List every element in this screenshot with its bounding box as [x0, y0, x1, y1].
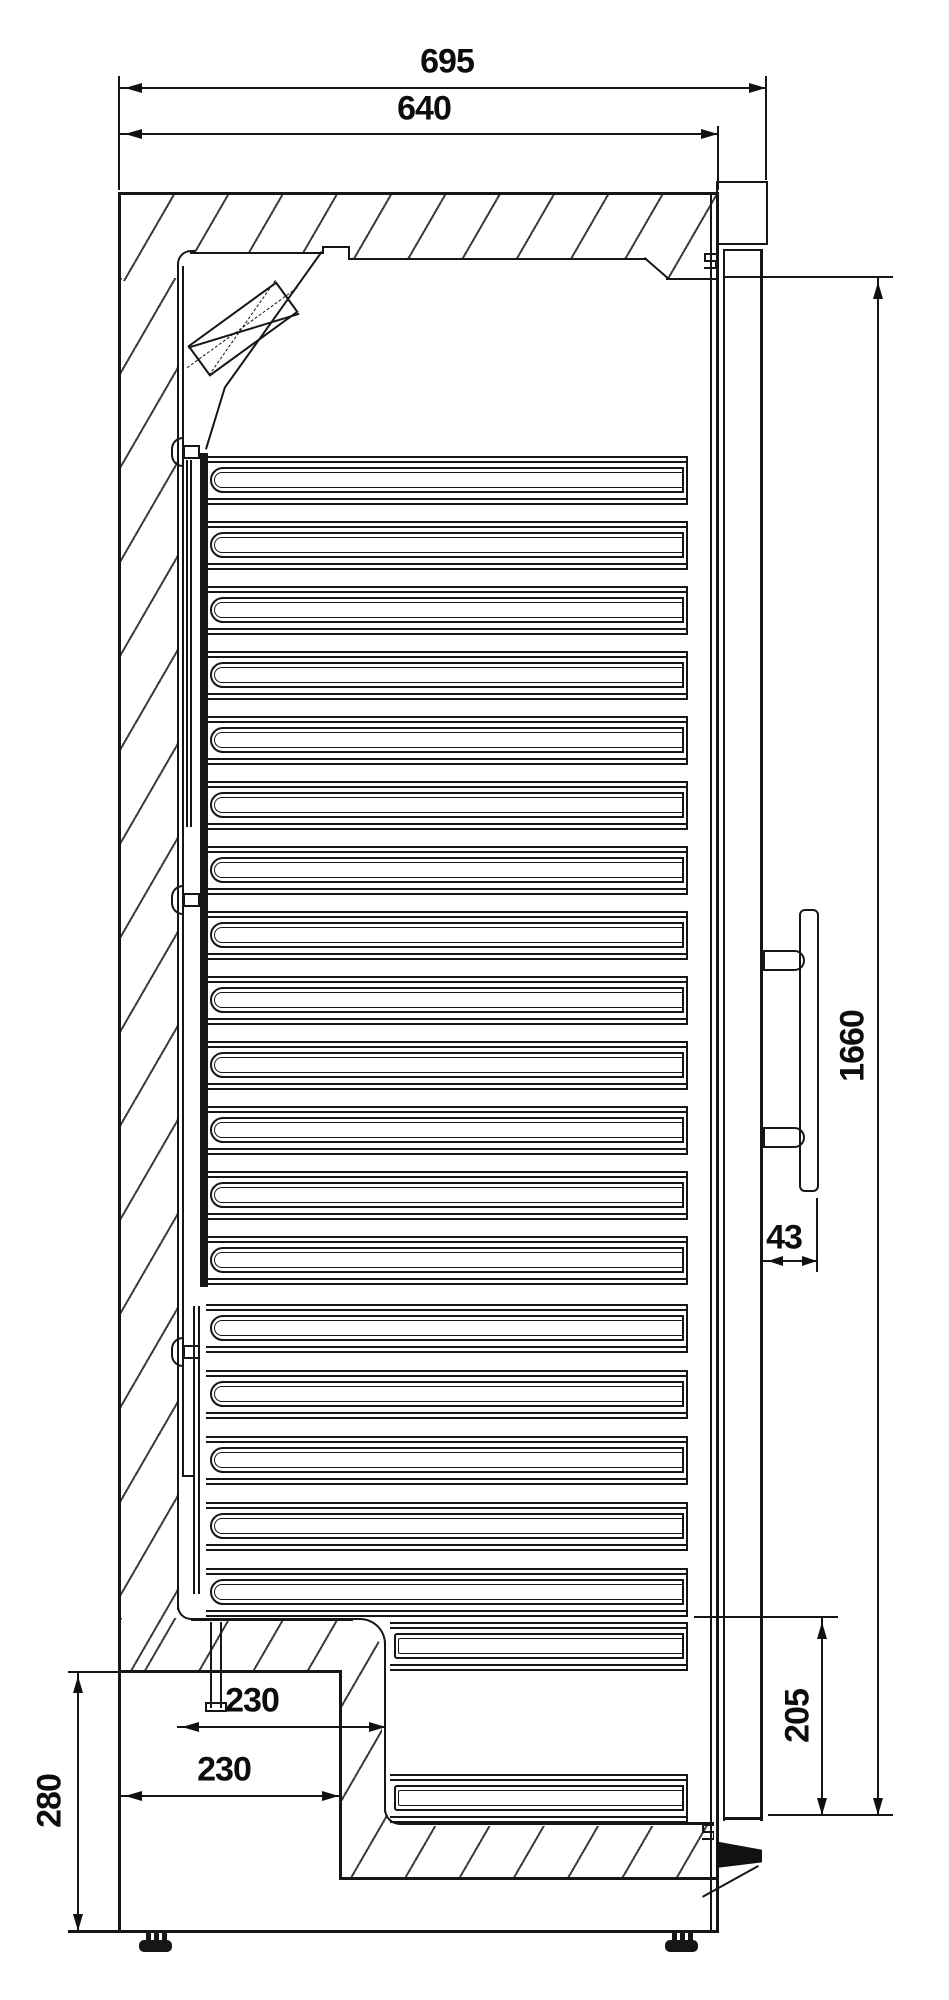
- door-outer-face: [760, 249, 763, 1821]
- shelf-line: [206, 1088, 688, 1090]
- shelf-line: [206, 461, 688, 463]
- shelf-line: [206, 1436, 688, 1438]
- shelf-line: [206, 1278, 688, 1280]
- shelf-line: [390, 1779, 688, 1781]
- shelf-line: [206, 1018, 688, 1020]
- shelf-line: [206, 1046, 688, 1048]
- shelf-tube-inner: [214, 472, 684, 488]
- shelf-tube-capsule: [210, 662, 684, 688]
- arrow-right-icon: [322, 1791, 344, 1801]
- shelf-tube-capsule: [210, 1381, 684, 1407]
- shelf-line: [390, 1622, 688, 1624]
- door-top-edge: [723, 249, 763, 251]
- shelf-end-cap: [686, 1568, 688, 1617]
- interior-floor-line: [191, 1618, 353, 1621]
- shelf-line: [206, 976, 688, 978]
- cabinet-front-frame-inner: [710, 192, 712, 1933]
- shelf-line: [206, 1549, 688, 1551]
- arrow-left-icon: [120, 83, 142, 93]
- step-corner-top: [351, 1618, 386, 1644]
- shelf-tube-capsule: [394, 1633, 684, 1659]
- top-hinge-bracket: [716, 181, 768, 245]
- shelf-line: [206, 628, 688, 630]
- shelf-line: [206, 1370, 688, 1372]
- shelf-line: [206, 568, 688, 570]
- shelf-tube-inner: [214, 927, 684, 943]
- shelf-tube-inner: [214, 537, 684, 553]
- technical-drawing-canvas: 695 640 1660 205 43 280 230 230: [0, 0, 949, 2000]
- left-wall-hatch: [120, 278, 177, 1672]
- shelf-line: [206, 781, 688, 783]
- shelf-line: [206, 1309, 688, 1311]
- shelf-line: [390, 1816, 688, 1818]
- evaporator-shelf: [206, 1236, 688, 1285]
- evaporator-shelf: [206, 456, 688, 505]
- cabinet-top-edge: [120, 192, 718, 195]
- evaporator-shelf: [206, 586, 688, 635]
- shelf-end-cap: [686, 911, 688, 960]
- shelf-line: [206, 953, 688, 955]
- evap-rear-panel-a: [186, 460, 188, 827]
- shelf-line: [206, 1610, 688, 1612]
- shelf-tube-capsule: [210, 727, 684, 753]
- shelf-line: [206, 763, 688, 765]
- evaporator-shelf: [206, 716, 688, 765]
- shelf-line: [206, 846, 688, 848]
- shelf-line: [206, 1083, 688, 1085]
- shelf-line: [206, 1148, 688, 1150]
- arrow-down-icon: [73, 1914, 83, 1936]
- dim-line-230-outer: [120, 1795, 339, 1797]
- shelf-line: [206, 1441, 688, 1443]
- ceiling-liner-left: [190, 252, 322, 254]
- dim-line-205: [821, 1617, 823, 1815]
- evaporator-shelf: [206, 1370, 688, 1419]
- arrow-down-icon: [873, 1798, 883, 1820]
- ceiling-liner-mid: [348, 258, 647, 260]
- shelf-tube-capsule: [210, 1247, 684, 1273]
- shelf-tube-capsule: [210, 1315, 684, 1341]
- evaporator-shelf: [206, 1041, 688, 1090]
- shelf-tube-inner: [214, 602, 684, 618]
- shelf-line: [206, 851, 688, 853]
- shelf-end-cap: [686, 456, 688, 505]
- dim-line-640: [120, 133, 718, 135]
- ceiling-notch-top: [322, 246, 350, 248]
- shelf-line: [206, 721, 688, 723]
- shelf-line: [206, 1111, 688, 1113]
- compartment-ceiling-line: [120, 1670, 341, 1673]
- shelf-line: [206, 916, 688, 918]
- shelf-tube-capsule: [210, 792, 684, 818]
- bottom-hinge-block: [716, 1840, 762, 1868]
- dim-line-1660: [877, 277, 879, 1815]
- shelf-end-cap: [686, 976, 688, 1025]
- shelf-line: [206, 521, 688, 523]
- shelf-line: [206, 591, 688, 593]
- shelf-end-cap: [686, 651, 688, 700]
- evaporator-shelf: [206, 1568, 688, 1617]
- shelf-tube-capsule: [210, 597, 684, 623]
- shelf-line: [206, 981, 688, 983]
- shelf-line: [206, 1023, 688, 1025]
- shelf-line: [206, 1236, 688, 1238]
- cabinet-front-frame-outer: [716, 192, 719, 1933]
- shelf-line: [206, 1568, 688, 1570]
- shelf-line: [206, 1213, 688, 1215]
- shelf-line: [206, 828, 688, 830]
- shelf-line: [390, 1821, 688, 1823]
- shelf-end-cap: [686, 1502, 688, 1551]
- shelf-line: [390, 1627, 688, 1629]
- gasket-bottom-icon: [713, 1831, 715, 1839]
- shelf-tube-inner: [214, 1386, 684, 1402]
- shelf-line: [206, 1615, 688, 1617]
- shelf-tube-inner: [214, 1122, 684, 1138]
- shelf-line: [206, 586, 688, 588]
- dim-depth-inner-label: 230: [225, 1682, 279, 1721]
- shelf-line: [206, 1153, 688, 1155]
- shelf-end-cap: [686, 716, 688, 765]
- evaporator-shelf: [206, 1502, 688, 1551]
- shelf-tube-inner: [214, 667, 684, 683]
- shelf-tube-capsule: [210, 1117, 684, 1143]
- evaporator-shelf: [206, 976, 688, 1025]
- dim-handle-standoff-label: 43: [766, 1219, 802, 1258]
- shelf-end-cap: [686, 586, 688, 635]
- shelf-line: [390, 1774, 688, 1776]
- mount-bolt-dome: [171, 885, 183, 915]
- shelf-end-cap: [686, 1236, 688, 1285]
- door-inner-face: [723, 249, 725, 1821]
- shelf-tube-capsule: [394, 1785, 684, 1811]
- shelf-line: [206, 1412, 688, 1414]
- arrow-left-icon: [177, 1722, 199, 1732]
- shelf-end-cap: [686, 781, 688, 830]
- evaporator-shelf: [206, 651, 688, 700]
- shelf-line: [206, 1304, 688, 1306]
- ext-line: [723, 276, 893, 278]
- shelf-tube-inner: [214, 992, 684, 1008]
- shelf-line: [206, 1176, 688, 1178]
- shelf-end-cap: [686, 1041, 688, 1090]
- shelf-end-cap: [686, 1304, 688, 1353]
- shelf-tube-capsule: [210, 1182, 684, 1208]
- shelf-line: [206, 1351, 688, 1353]
- mount-bolt-nut: [183, 445, 200, 459]
- shelf-line: [206, 456, 688, 458]
- shelf-line: [206, 1106, 688, 1108]
- shelf-tube-inner: [214, 1518, 684, 1534]
- fan-duct-line-b: [205, 387, 226, 450]
- shelf-line: [206, 1218, 688, 1220]
- shelf-tube-inner: [398, 1790, 684, 1806]
- shelf-line: [206, 1041, 688, 1043]
- shelf-tube-inner: [214, 1320, 684, 1336]
- shelf-tube-inner: [398, 1638, 684, 1654]
- arrow-left-icon: [120, 1791, 142, 1801]
- shelf-line: [206, 526, 688, 528]
- shelf-tube-capsule: [210, 922, 684, 948]
- shelf-tube-capsule: [210, 1579, 684, 1605]
- gasket-top-icon: [704, 253, 716, 255]
- shelf-end-cap: [686, 1106, 688, 1155]
- shelf-line: [390, 1664, 688, 1666]
- shelf-tube-capsule: [210, 857, 684, 883]
- gasket-bottom-icon: [702, 1824, 704, 1832]
- shelf-line: [206, 698, 688, 700]
- shelf-end-cap: [686, 1171, 688, 1220]
- arrow-up-icon: [817, 1617, 827, 1639]
- ceiling-liner-right: [666, 278, 716, 280]
- shelf-line: [390, 1669, 688, 1671]
- mount-bolt-dome: [171, 1337, 183, 1367]
- shelf-tube-inner: [214, 797, 684, 813]
- shelf-tube-inner: [214, 862, 684, 878]
- shelf-line: [206, 1283, 688, 1285]
- shelf-tube-capsule: [210, 467, 684, 493]
- shelf-line: [206, 893, 688, 895]
- wall-liner-a: [177, 266, 179, 1610]
- evaporator-shelf: [206, 846, 688, 895]
- shelf-end-cap: [686, 846, 688, 895]
- shelf-tube-capsule: [210, 1513, 684, 1539]
- shelf-tube-inner: [214, 1057, 684, 1073]
- dim-body-depth-label: 640: [397, 90, 451, 129]
- shelf-line: [206, 498, 688, 500]
- shelf-tube-capsule: [210, 987, 684, 1013]
- recess-bottom-line: [339, 1877, 718, 1880]
- shelf-end-cap: [686, 521, 688, 570]
- shelf-line: [206, 1573, 688, 1575]
- shelf-end-cap: [686, 1622, 688, 1671]
- shelf-tube-inner: [214, 1452, 684, 1468]
- shelf-line: [206, 633, 688, 635]
- drain-tube-right: [220, 1622, 222, 1708]
- evaporator-shelf: [206, 1171, 688, 1220]
- mount-bolt-nut: [183, 893, 200, 907]
- shelf-line: [206, 693, 688, 695]
- evaporator-shelf: [206, 521, 688, 570]
- dim-depth-outer-label: 230: [197, 1751, 251, 1790]
- shelf-line: [206, 1375, 688, 1377]
- shelf-line: [206, 1171, 688, 1173]
- arrow-right-icon: [701, 129, 723, 139]
- shelf-tube-capsule: [210, 1052, 684, 1078]
- shelf-line: [206, 786, 688, 788]
- shelf-line: [206, 1502, 688, 1504]
- shelf-end-cap: [686, 1774, 688, 1823]
- evaporator-shelf: [206, 911, 688, 960]
- arrow-left-icon: [763, 1256, 783, 1266]
- shelf-line: [206, 563, 688, 565]
- evaporator-shelf: [206, 1106, 688, 1155]
- top-wall-hatch: [120, 192, 718, 281]
- arrow-right-icon: [369, 1722, 391, 1732]
- shelf-line: [206, 823, 688, 825]
- shelf-line: [206, 1241, 688, 1243]
- shelf-line: [206, 716, 688, 718]
- dim-recess-height-label: 205: [779, 1689, 818, 1743]
- shelf-end-cap: [686, 1436, 688, 1485]
- arrow-up-icon: [873, 277, 883, 299]
- ceiling-notch-side-a: [322, 246, 324, 254]
- shelf-tube-inner: [214, 1187, 684, 1203]
- dim-line-280: [77, 1671, 79, 1931]
- shelf-tube-capsule: [210, 532, 684, 558]
- step-outer-face: [339, 1670, 342, 1880]
- evaporator-shelf: [390, 1622, 688, 1671]
- arrow-left-icon: [120, 129, 142, 139]
- shelf-line: [206, 503, 688, 505]
- mount-bolt-nut: [183, 1345, 200, 1359]
- evaporator-shelf: [206, 1304, 688, 1353]
- shelf-tube-inner: [214, 732, 684, 748]
- evaporator-shelf: [390, 1774, 688, 1823]
- fan-symbol-axis: [187, 287, 298, 368]
- gasket-top-icon: [715, 260, 717, 268]
- shelf-line: [206, 1507, 688, 1509]
- shelf-line: [206, 1417, 688, 1419]
- dim-compartment-height-label: 280: [31, 1774, 70, 1828]
- gasket-bottom-icon: [702, 1824, 714, 1826]
- shelf-tube-inner: [214, 1584, 684, 1600]
- arrow-down-icon: [817, 1798, 827, 1820]
- dim-line-230-inner: [177, 1726, 386, 1728]
- door-bottom-edge: [723, 1817, 763, 1820]
- shelf-line: [206, 758, 688, 760]
- handle-standoff-bottom: [763, 1127, 805, 1148]
- handle-standoff-top: [763, 950, 805, 971]
- dim-door-height-label: 1660: [834, 1010, 873, 1082]
- shelf-line: [206, 1483, 688, 1485]
- shelf-end-cap: [686, 1370, 688, 1419]
- shelf-line: [206, 1346, 688, 1348]
- shelf-line: [206, 651, 688, 653]
- arrow-up-icon: [73, 1671, 83, 1693]
- drain-tube-left: [210, 1622, 212, 1708]
- drain-tube-tip: [205, 1702, 227, 1712]
- shelf-line: [206, 656, 688, 658]
- mount-bolt-dome: [171, 437, 183, 467]
- arrow-right-icon: [802, 1256, 822, 1266]
- dim-overall-depth-label: 695: [420, 43, 474, 82]
- evaporator-shelf: [206, 781, 688, 830]
- shelf-line: [206, 1478, 688, 1480]
- shelf-tube-capsule: [210, 1447, 684, 1473]
- shelf-line: [206, 958, 688, 960]
- evap-rear-panel-b: [190, 460, 192, 827]
- shelf-line: [206, 911, 688, 913]
- shelf-line: [206, 1544, 688, 1546]
- door-handle-bar: [799, 909, 819, 1192]
- gasket-top-icon: [704, 253, 706, 261]
- evaporator-shelf: [206, 1436, 688, 1485]
- shelf-line: [206, 888, 688, 890]
- arrow-right-icon: [749, 83, 771, 93]
- shelf-tube-inner: [214, 1252, 684, 1268]
